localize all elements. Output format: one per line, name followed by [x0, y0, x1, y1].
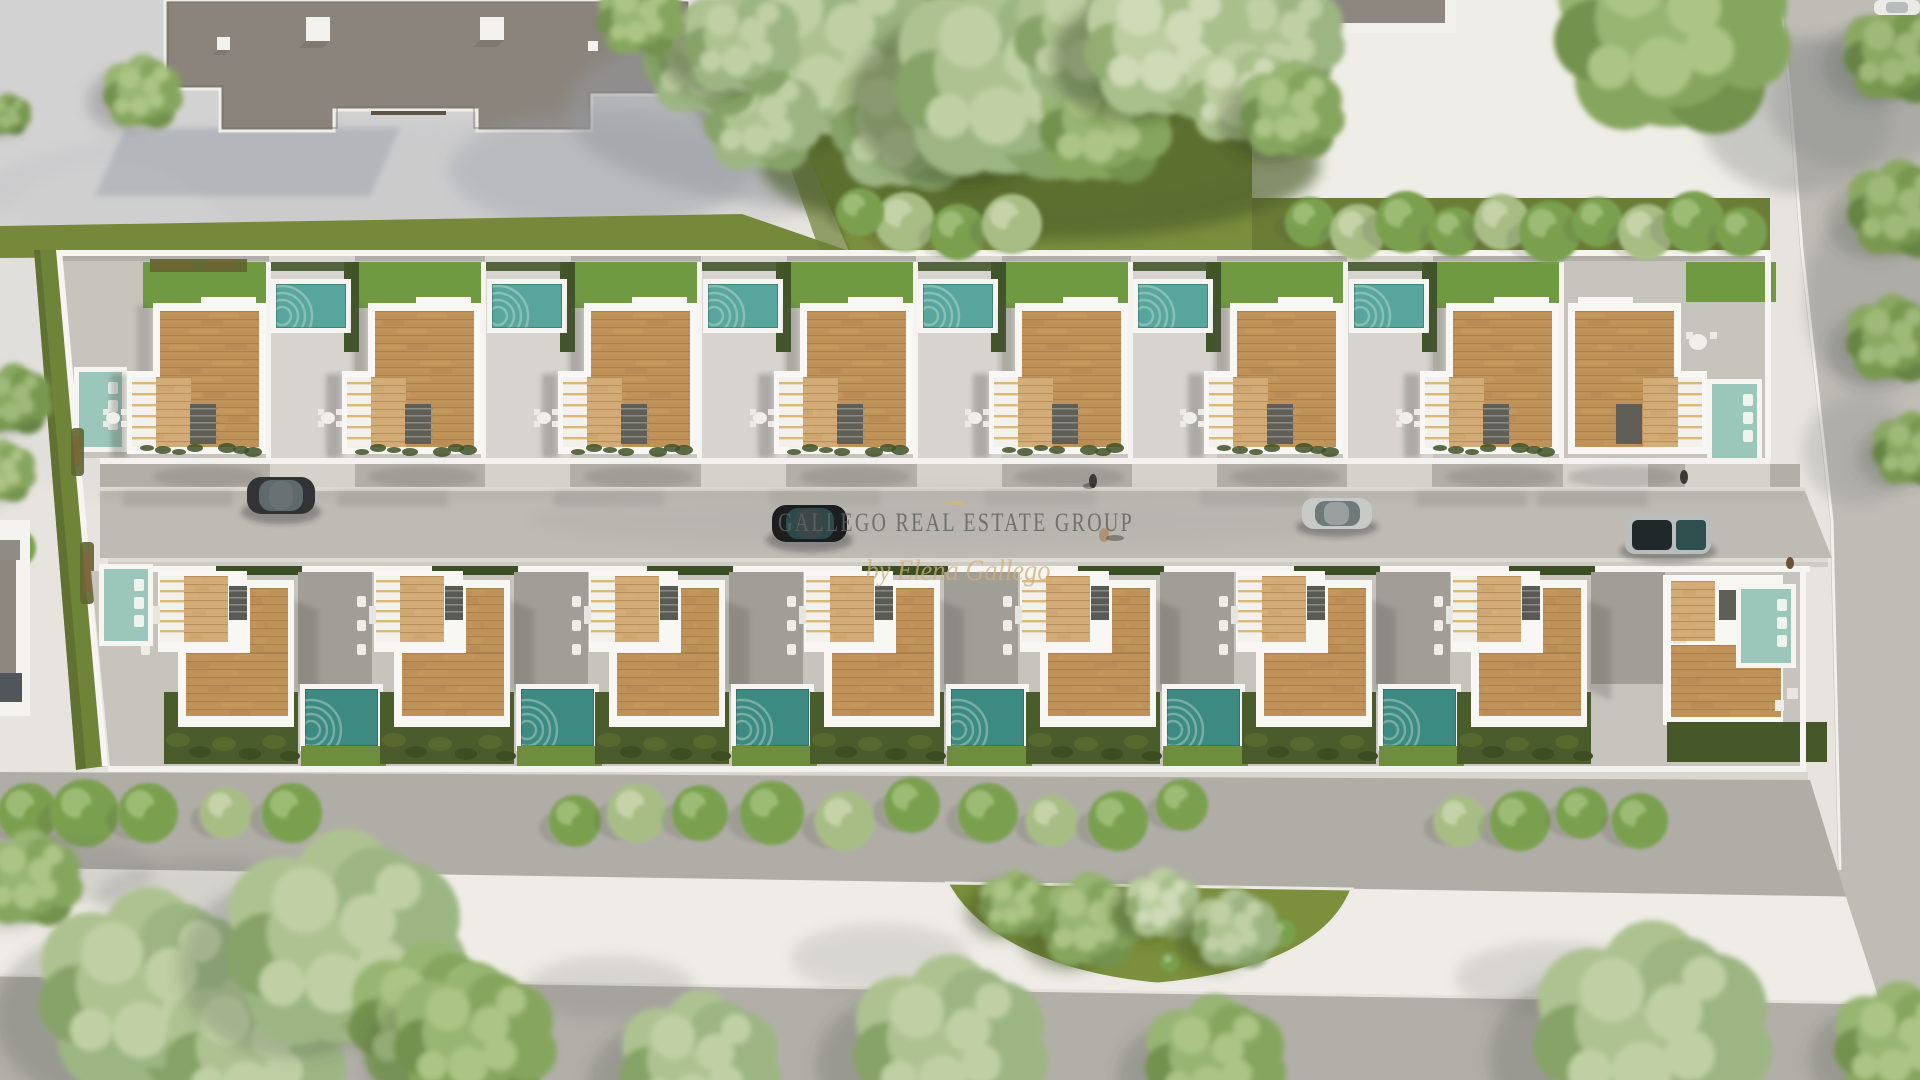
svg-text:by Elena Gallego: by Elena Gallego [866, 554, 1051, 587]
svg-text:GALLEGO REAL ESTATE GROUP: GALLEGO REAL ESTATE GROUP [778, 508, 1134, 537]
